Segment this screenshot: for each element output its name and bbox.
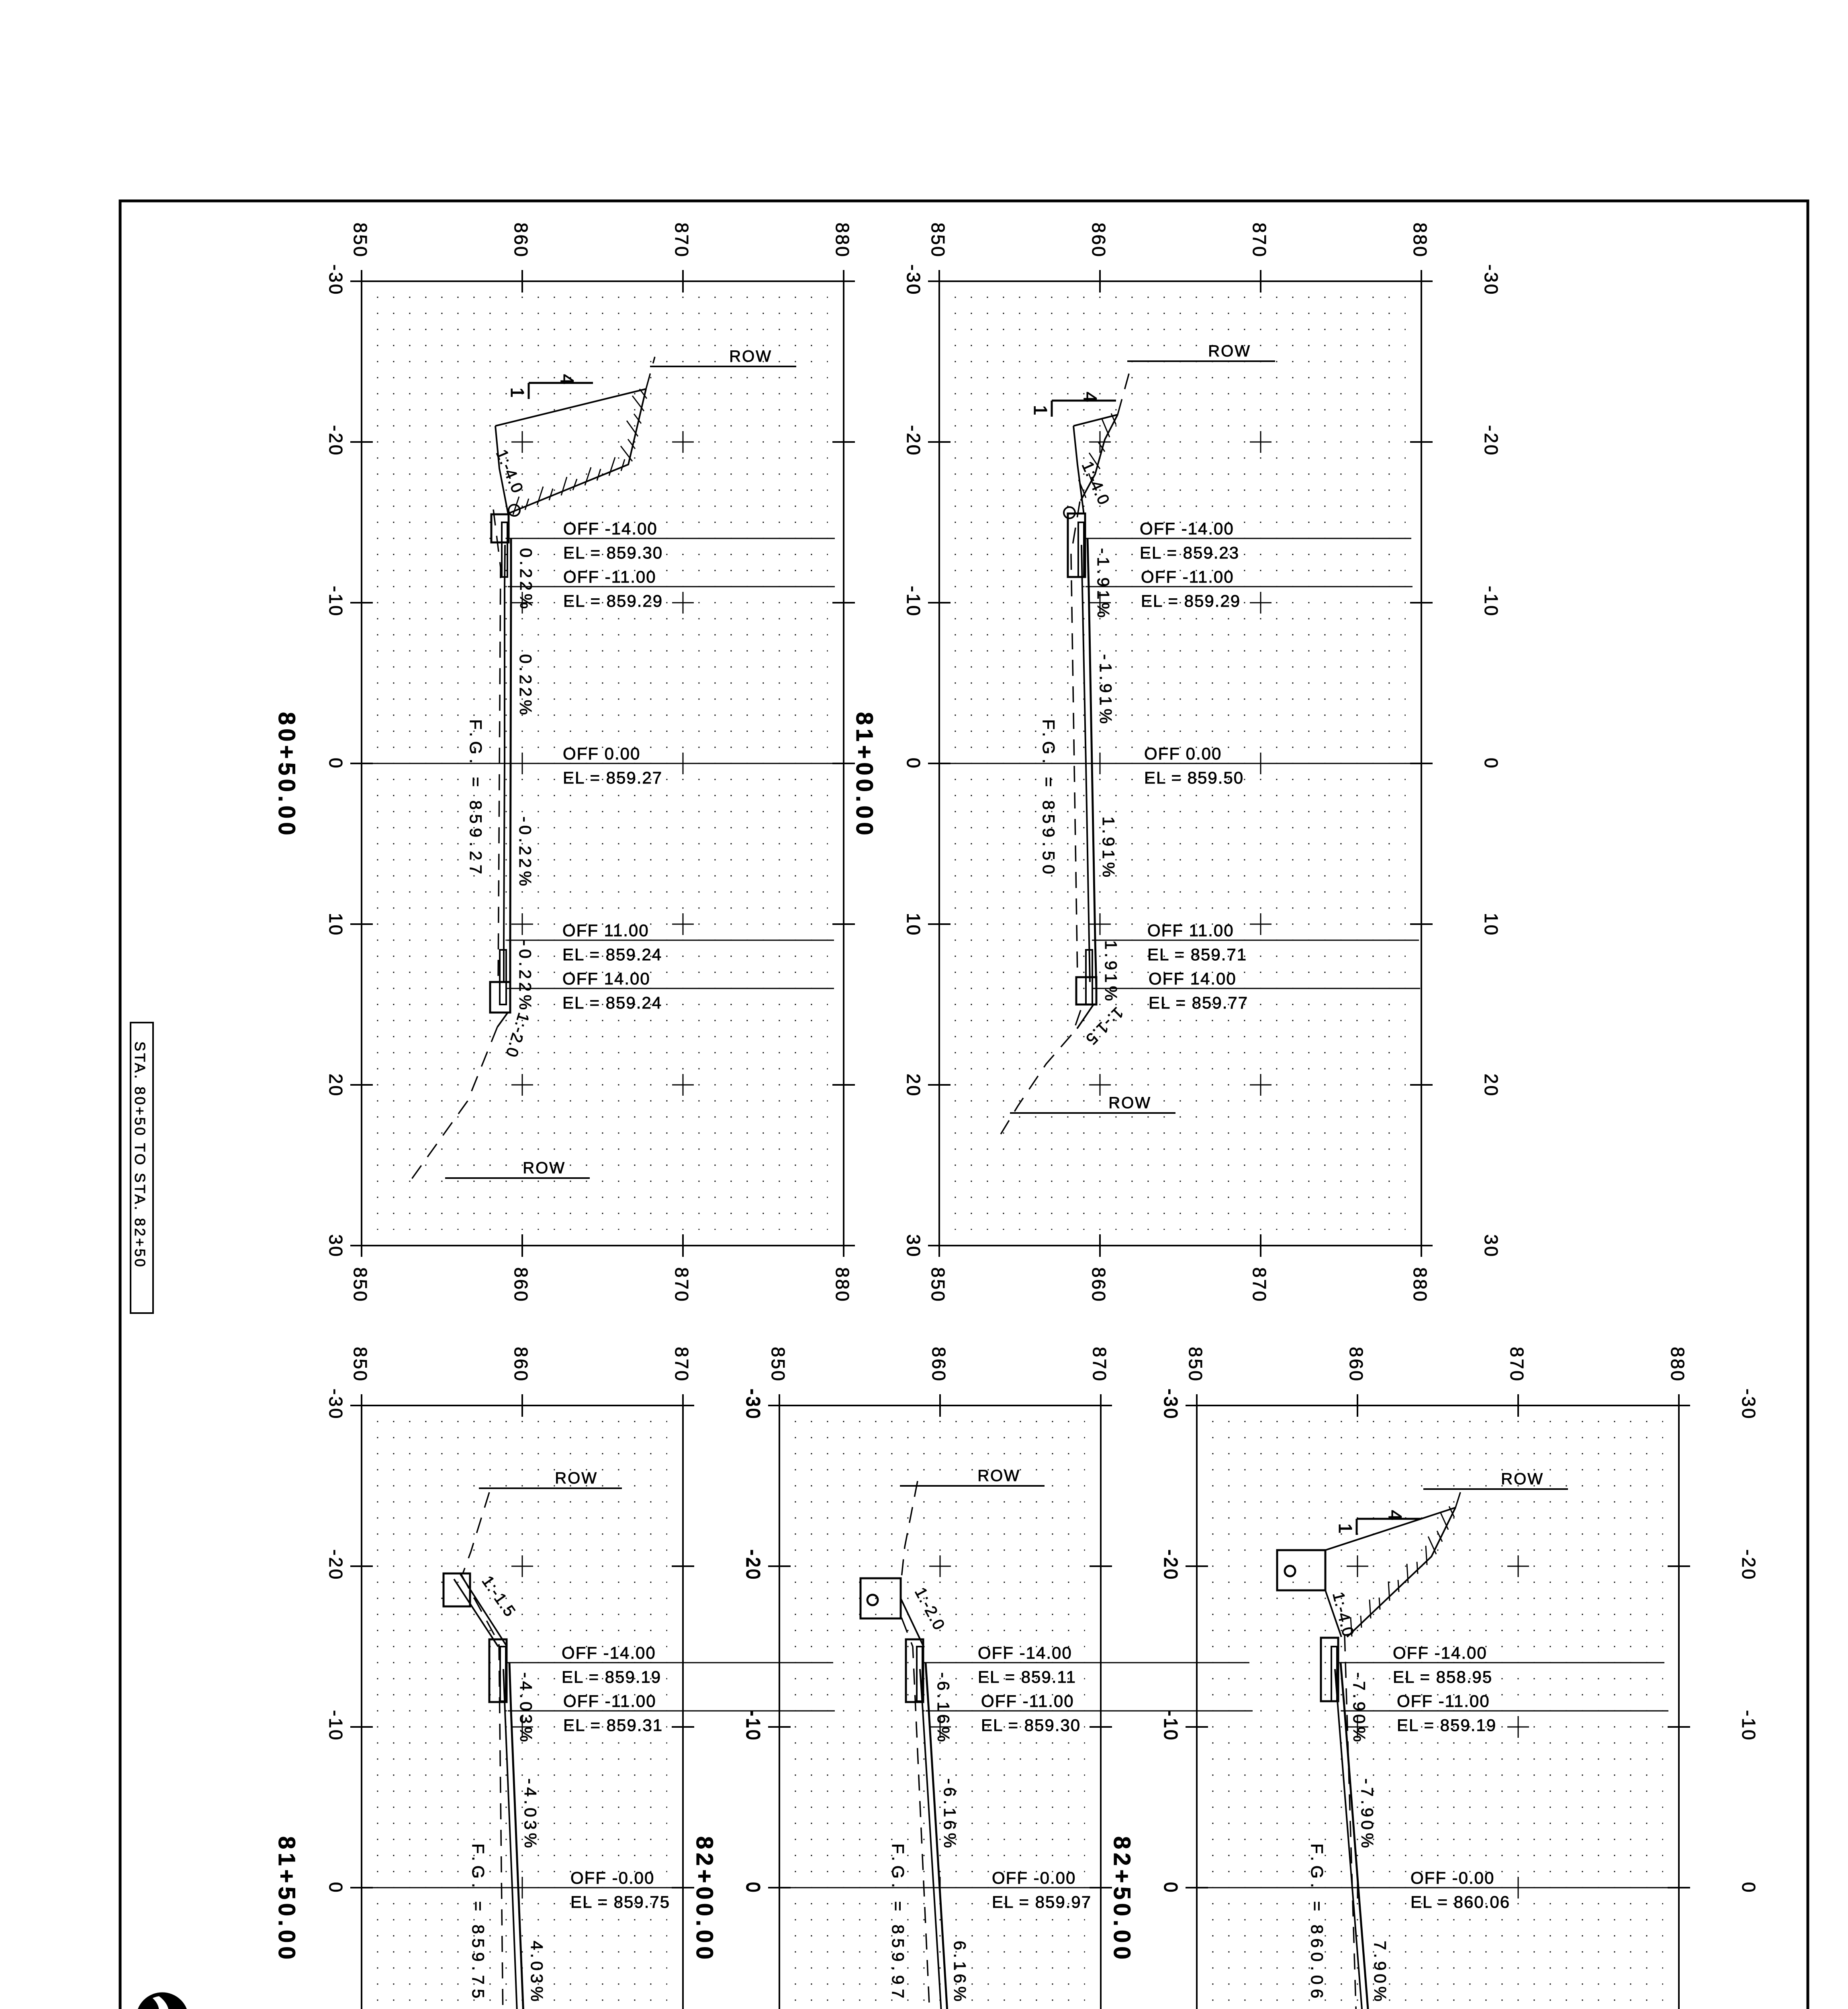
- svg-text:870: 870: [1249, 1267, 1270, 1303]
- svg-text:30: 30: [1481, 1234, 1502, 1258]
- svg-text:OFF -11.00: OFF -11.00: [1397, 1692, 1490, 1710]
- svg-text:870: 870: [671, 1347, 692, 1383]
- svg-text:850: 850: [350, 223, 371, 258]
- svg-text:0: 0: [325, 1882, 346, 1894]
- svg-text:20: 20: [1481, 1074, 1502, 1097]
- svg-text:1: 1: [1030, 405, 1051, 417]
- svg-text:-20: -20: [1738, 1549, 1759, 1581]
- svg-text:OFF 11.00: OFF 11.00: [1147, 921, 1234, 940]
- svg-text:-30: -30: [325, 264, 346, 296]
- svg-text:F.G. = 859.27: F.G. = 859.27: [466, 719, 485, 878]
- svg-text:-30: -30: [1481, 264, 1502, 296]
- svg-text:880: 880: [1667, 1347, 1688, 1383]
- svg-text:-20: -20: [1161, 1549, 1182, 1581]
- svg-text:OFF 0.00: OFF 0.00: [1144, 744, 1222, 763]
- svg-text:850: 850: [928, 223, 949, 258]
- svg-text:860: 860: [928, 1347, 949, 1383]
- svg-text:-20: -20: [325, 425, 346, 456]
- svg-text:20: 20: [325, 1074, 346, 1097]
- svg-text:0.22%: 0.22%: [516, 654, 535, 718]
- svg-text:-10: -10: [903, 586, 924, 617]
- svg-text:EL = 860.06: EL = 860.06: [1411, 1892, 1510, 1911]
- svg-text:82+00.00: 82+00.00: [691, 1836, 718, 1963]
- svg-text:OFF 14.00: OFF 14.00: [562, 969, 650, 988]
- svg-text:860: 860: [511, 223, 532, 258]
- svg-text:EL = 859.19: EL = 859.19: [1397, 1716, 1496, 1735]
- svg-text:-10: -10: [325, 1710, 346, 1741]
- svg-text:-30: -30: [903, 264, 924, 296]
- svg-text:EL = 859.19: EL = 859.19: [562, 1667, 661, 1686]
- svg-text:0: 0: [743, 1882, 764, 1894]
- svg-text:-30: -30: [1161, 1389, 1182, 1420]
- svg-text:OFF -14.00: OFF -14.00: [1393, 1643, 1487, 1662]
- svg-text:EL = 859.30: EL = 859.30: [563, 543, 663, 562]
- svg-text:0: 0: [903, 758, 924, 770]
- svg-text:0: 0: [325, 758, 346, 770]
- svg-text:OFF -14.00: OFF -14.00: [1140, 519, 1234, 538]
- svg-text:ROW: ROW: [729, 348, 772, 365]
- svg-text:EL = 859.75: EL = 859.75: [570, 1892, 670, 1911]
- svg-text:OFF -11.00: OFF -11.00: [563, 567, 656, 586]
- svg-text:OFF -0.00: OFF -0.00: [1411, 1868, 1494, 1887]
- svg-text:ROW: ROW: [1108, 1094, 1151, 1112]
- svg-text:880: 880: [832, 223, 853, 258]
- svg-text:4: 4: [1080, 392, 1101, 403]
- svg-text:4.03%: 4.03%: [527, 1941, 546, 2005]
- svg-text:870: 870: [671, 1267, 692, 1303]
- svg-text:1: 1: [507, 387, 528, 399]
- svg-text:880: 880: [1410, 223, 1431, 258]
- svg-text:1.91%: 1.91%: [1102, 940, 1120, 1004]
- svg-text:10: 10: [903, 913, 924, 937]
- svg-text:F.G. = 860.06: F.G. = 860.06: [1308, 1843, 1327, 2003]
- svg-text:-4.03%: -4.03%: [521, 1778, 540, 1851]
- svg-text:-20: -20: [1481, 425, 1502, 456]
- svg-text:F.G. = 859.75: F.G. = 859.75: [469, 1843, 488, 2003]
- svg-text:-10: -10: [1481, 586, 1502, 617]
- svg-text:-4.03%: -4.03%: [517, 1672, 536, 1745]
- svg-text:EL = 859.71: EL = 859.71: [1147, 945, 1247, 964]
- svg-text:870: 870: [1089, 1347, 1110, 1383]
- svg-text:0: 0: [1738, 1882, 1759, 1894]
- svg-text:EL = 859.31: EL = 859.31: [563, 1716, 663, 1735]
- svg-text:-10: -10: [1161, 1710, 1182, 1741]
- svg-text:80+50.00: 80+50.00: [274, 712, 300, 839]
- svg-text:850: 850: [350, 1347, 371, 1383]
- svg-text:860: 860: [511, 1347, 532, 1383]
- svg-text:OFF -14.00: OFF -14.00: [978, 1643, 1072, 1662]
- svg-text:ROW: ROW: [1501, 1470, 1544, 1488]
- svg-text:850: 850: [350, 1267, 371, 1303]
- svg-text:870: 870: [1507, 1347, 1527, 1383]
- svg-text:81+00.00: 81+00.00: [851, 712, 877, 839]
- svg-text:1: 1: [1335, 1523, 1356, 1535]
- svg-text:EL = 859.24: EL = 859.24: [562, 993, 662, 1012]
- svg-text:870: 870: [1249, 223, 1270, 258]
- svg-text:OFF -11.00: OFF -11.00: [981, 1692, 1074, 1710]
- svg-text:4: 4: [557, 374, 578, 386]
- svg-text:STA. 80+50 TO STA. 82+50: STA. 80+50 TO STA. 82+50: [132, 1041, 148, 1269]
- svg-text:860: 860: [1088, 1267, 1109, 1303]
- svg-text:82+50.00: 82+50.00: [1109, 1836, 1135, 1963]
- svg-text:20: 20: [903, 1074, 924, 1097]
- svg-text:OFF -11.00: OFF -11.00: [1141, 567, 1234, 586]
- svg-text:860: 860: [1346, 1347, 1367, 1383]
- svg-text:EL = 859.27: EL = 859.27: [563, 768, 662, 787]
- svg-text:850: 850: [768, 1347, 789, 1383]
- svg-text:1.91%: 1.91%: [1099, 816, 1118, 880]
- svg-text:850: 850: [1185, 1347, 1206, 1383]
- svg-text:OFF -11.00: OFF -11.00: [563, 1692, 656, 1710]
- svg-text:-0.22%: -0.22%: [516, 940, 535, 1013]
- svg-text:850: 850: [928, 1267, 949, 1303]
- svg-text:OFF -0.00: OFF -0.00: [992, 1868, 1076, 1887]
- svg-text:EL = 859.29: EL = 859.29: [563, 591, 663, 610]
- svg-text:880: 880: [1410, 1267, 1431, 1303]
- svg-text:OFF -0.00: OFF -0.00: [570, 1868, 654, 1887]
- svg-text:0: 0: [1161, 1882, 1182, 1894]
- svg-text:-1.91%: -1.91%: [1094, 548, 1113, 621]
- svg-text:OFF -14.00: OFF -14.00: [563, 519, 658, 538]
- svg-text:-30: -30: [1738, 1389, 1759, 1420]
- svg-text:-6.16%: -6.16%: [940, 1778, 959, 1851]
- svg-text:F.G. = 859.97: F.G. = 859.97: [889, 1843, 908, 2003]
- svg-text:-0.22%: -0.22%: [516, 816, 535, 889]
- svg-text:EL = 859.29: EL = 859.29: [1141, 591, 1241, 610]
- svg-text:-20: -20: [325, 1549, 346, 1581]
- svg-text:EL = 859.97: EL = 859.97: [992, 1892, 1092, 1911]
- svg-text:-20: -20: [743, 1549, 764, 1581]
- svg-text:EL = 859.11: EL = 859.11: [978, 1667, 1076, 1686]
- svg-text:EL = 858.95: EL = 858.95: [1393, 1667, 1492, 1686]
- svg-text:81+50.00: 81+50.00: [274, 1836, 300, 1963]
- svg-text:0.22%: 0.22%: [517, 548, 536, 612]
- svg-text:6.16%: 6.16%: [951, 1941, 969, 2005]
- svg-text:ROW: ROW: [555, 1469, 598, 1487]
- svg-text:OFF 0.00: OFF 0.00: [563, 744, 640, 763]
- svg-text:ROW: ROW: [977, 1467, 1020, 1485]
- svg-text:-10: -10: [1738, 1710, 1759, 1741]
- svg-text:-7.90%: -7.90%: [1358, 1778, 1377, 1851]
- svg-text:EL = 859.23: EL = 859.23: [1140, 543, 1239, 562]
- svg-text:7.90%: 7.90%: [1371, 1941, 1390, 2005]
- svg-text:-10: -10: [325, 586, 346, 617]
- svg-text:OFF -14.00: OFF -14.00: [562, 1643, 656, 1662]
- svg-text:870: 870: [671, 223, 692, 258]
- svg-text:860: 860: [511, 1267, 532, 1303]
- svg-text:30: 30: [903, 1234, 924, 1258]
- svg-text:10: 10: [1481, 913, 1502, 937]
- svg-text:OFF 14.00: OFF 14.00: [1149, 969, 1237, 988]
- svg-text:EL = 859.50: EL = 859.50: [1144, 768, 1244, 787]
- svg-text:EL = 859.24: EL = 859.24: [562, 945, 662, 964]
- svg-text:-6.16%: -6.16%: [934, 1672, 953, 1745]
- svg-text:880: 880: [832, 1267, 853, 1303]
- svg-text:-30: -30: [743, 1389, 764, 1420]
- svg-text:-7.90%: -7.90%: [1350, 1672, 1369, 1745]
- svg-text:860: 860: [1088, 223, 1109, 258]
- svg-text:OFF 11.00: OFF 11.00: [562, 921, 649, 940]
- svg-text:ROW: ROW: [523, 1159, 566, 1177]
- svg-text:EL = 859.30: EL = 859.30: [981, 1716, 1081, 1735]
- svg-text:EL = 859.77: EL = 859.77: [1149, 993, 1248, 1012]
- svg-text:0: 0: [1481, 758, 1502, 770]
- svg-text:4: 4: [1385, 1510, 1406, 1522]
- svg-text:ROW: ROW: [1208, 342, 1251, 360]
- svg-text:30: 30: [325, 1234, 346, 1258]
- svg-text:-30: -30: [325, 1389, 346, 1420]
- svg-text:F.G. = 859.50: F.G. = 859.50: [1039, 719, 1058, 878]
- svg-text:-20: -20: [903, 425, 924, 456]
- svg-text:-10: -10: [743, 1710, 764, 1741]
- svg-text:10: 10: [325, 913, 346, 937]
- svg-text:-1.91%: -1.91%: [1096, 654, 1115, 727]
